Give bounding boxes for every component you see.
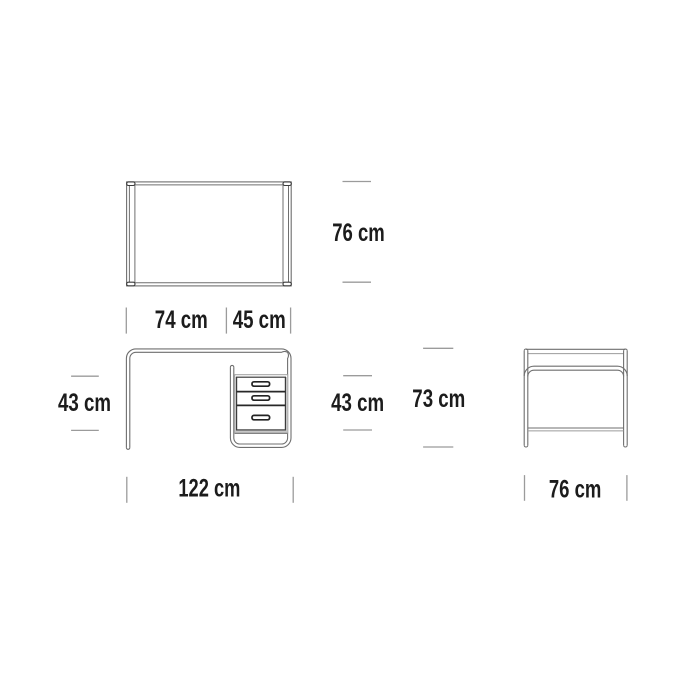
svg-text:45 cm: 45 cm bbox=[233, 307, 286, 334]
svg-text:43 cm: 43 cm bbox=[58, 390, 111, 417]
svg-text:43 cm: 43 cm bbox=[331, 390, 384, 417]
svg-text:122 cm: 122 cm bbox=[178, 475, 240, 502]
svg-text:73 cm: 73 cm bbox=[412, 386, 465, 413]
svg-text:76 cm: 76 cm bbox=[549, 477, 602, 504]
svg-text:74 cm: 74 cm bbox=[155, 307, 208, 334]
svg-text:76 cm: 76 cm bbox=[332, 220, 385, 247]
